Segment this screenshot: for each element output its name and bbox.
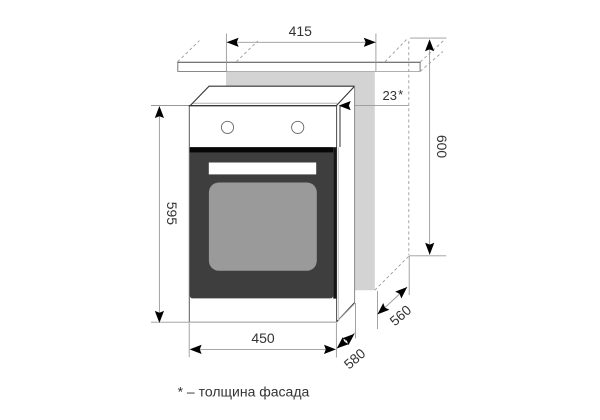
- svg-text:450: 450: [251, 330, 275, 346]
- svg-text:600: 600: [434, 135, 450, 159]
- svg-text:23*: 23*: [383, 87, 404, 103]
- svg-text:415: 415: [289, 23, 313, 39]
- svg-text:595: 595: [164, 202, 180, 226]
- svg-text:* – толщина фасада: * – толщина фасада: [178, 384, 310, 400]
